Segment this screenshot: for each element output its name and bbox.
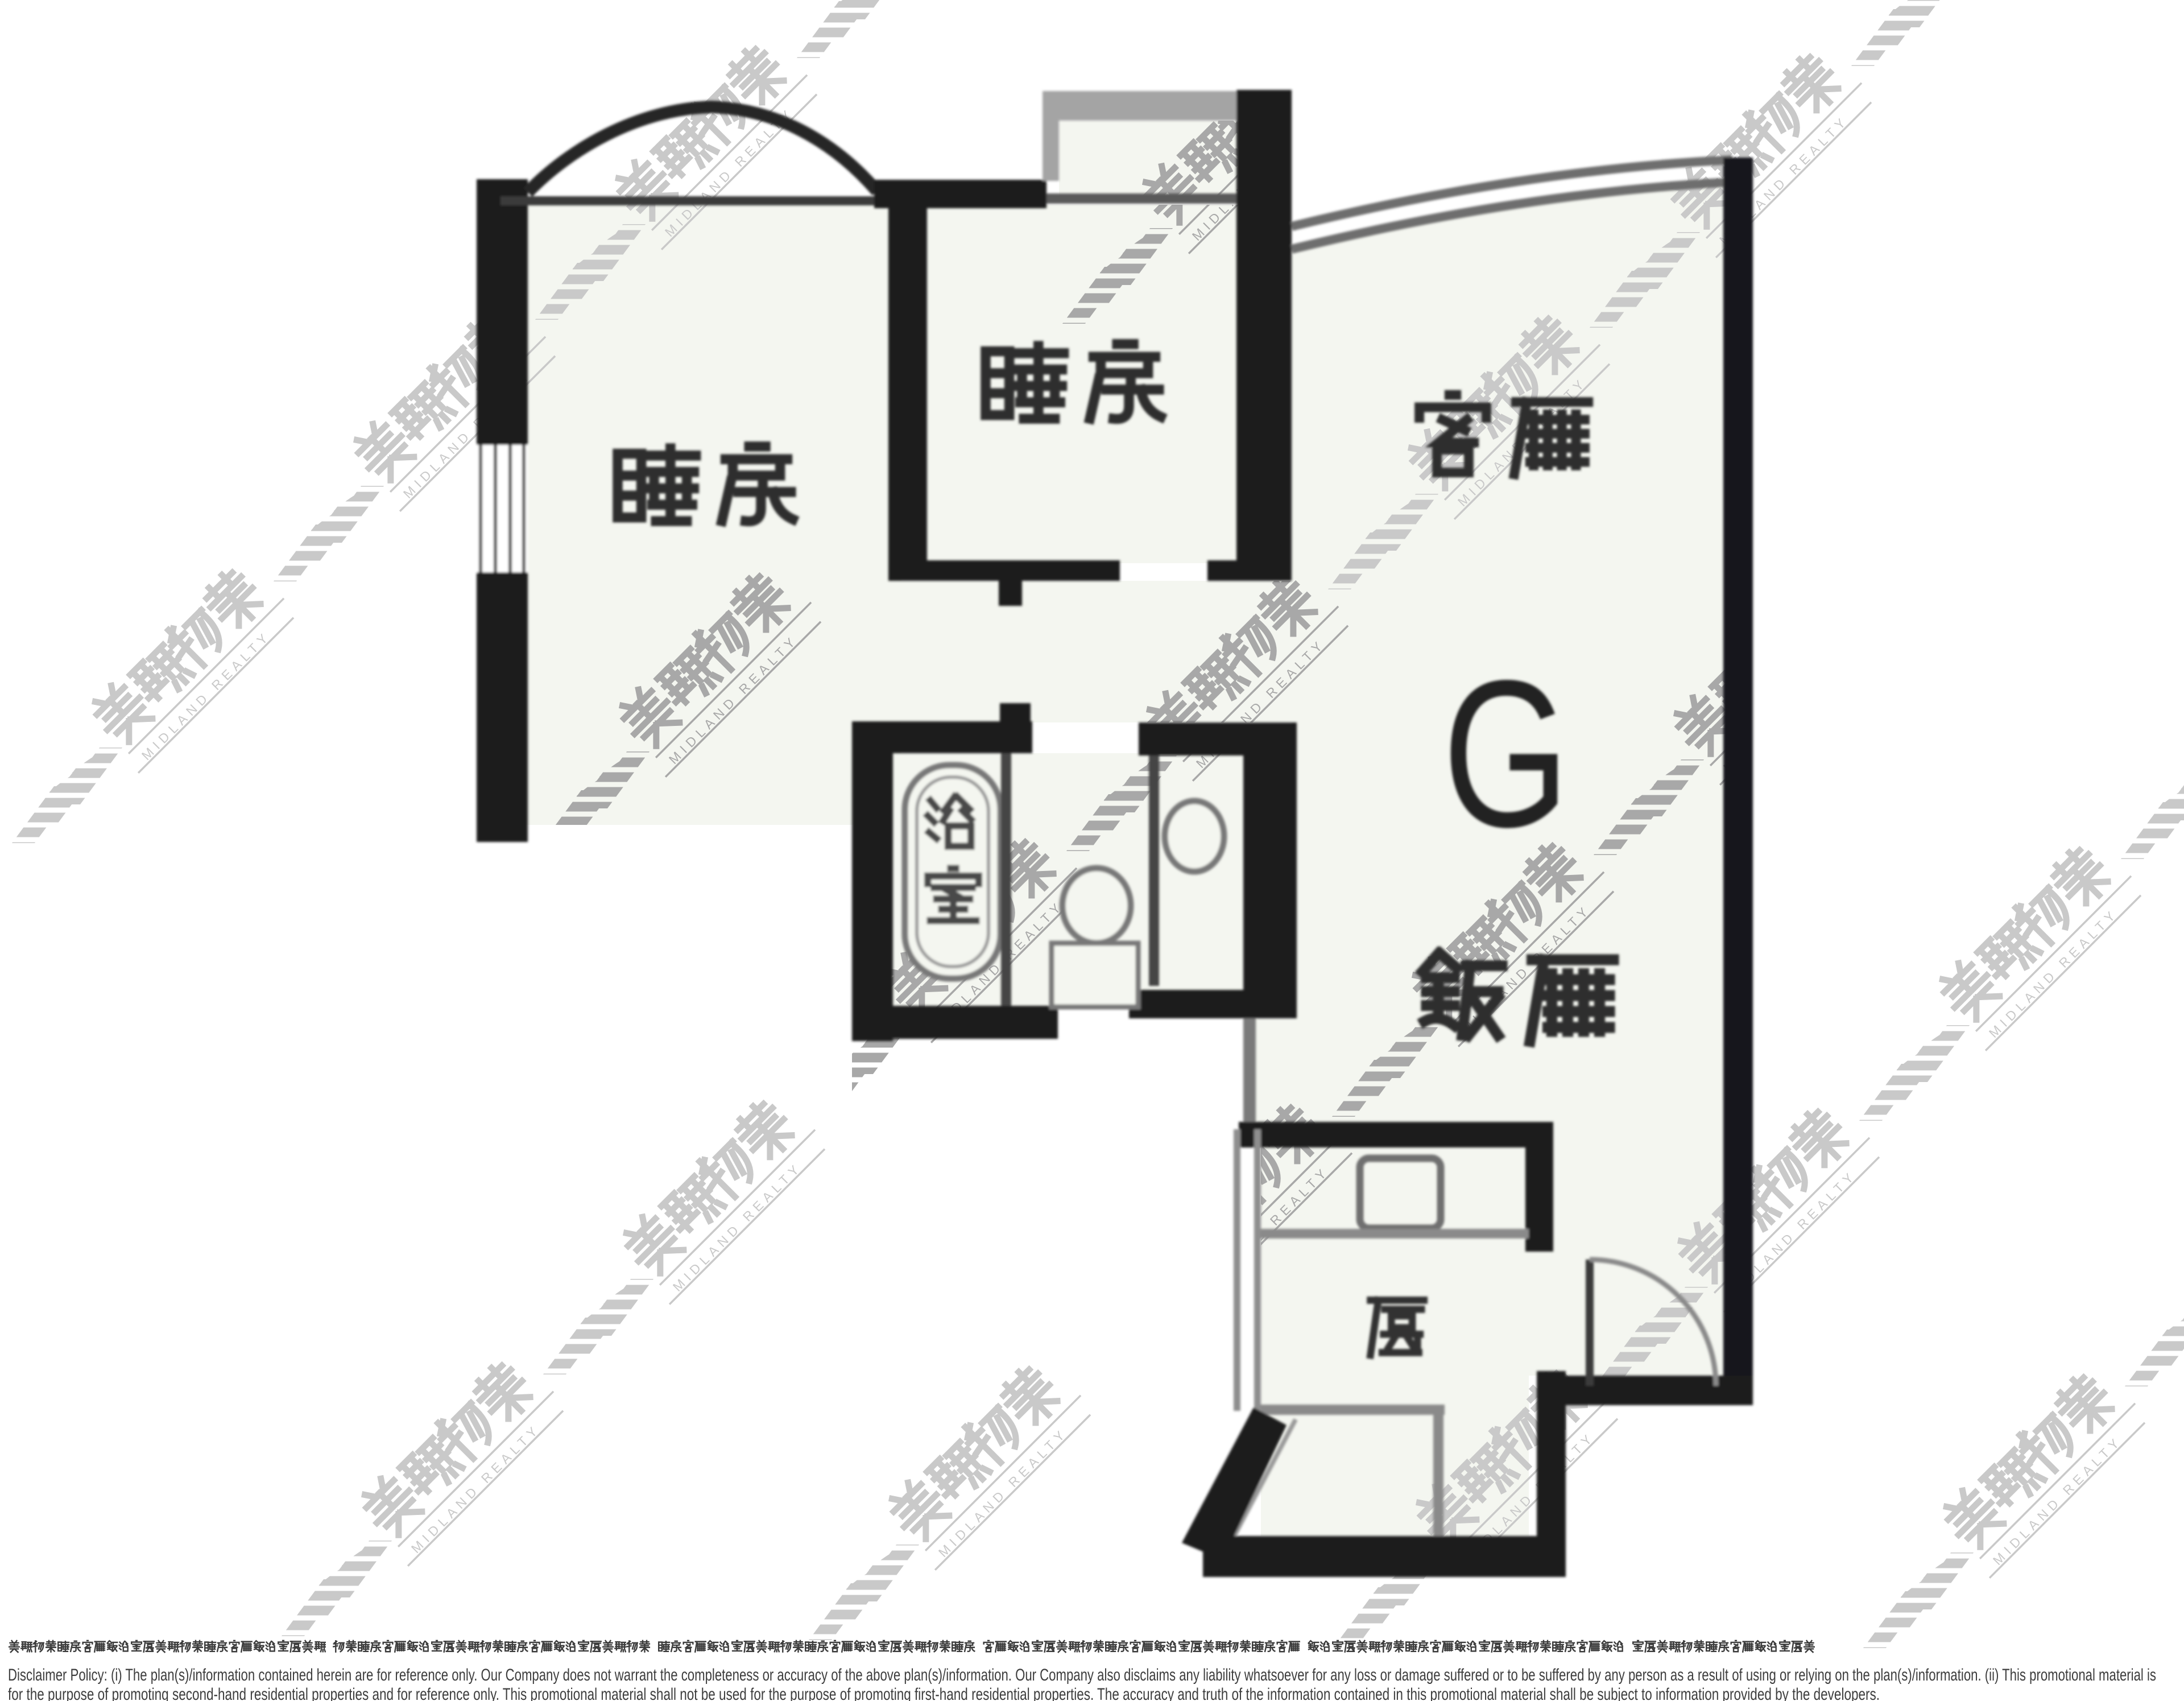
svg-text:for the purpose of promoting s: for the purpose of promoting second-hand…: [8, 1685, 1880, 1701]
svg-text:Disclaimer Policy: (i) The pla: Disclaimer Policy: (i) The plan(s)/infor…: [8, 1666, 2156, 1685]
svg-text:G: G: [1442, 637, 1569, 870]
